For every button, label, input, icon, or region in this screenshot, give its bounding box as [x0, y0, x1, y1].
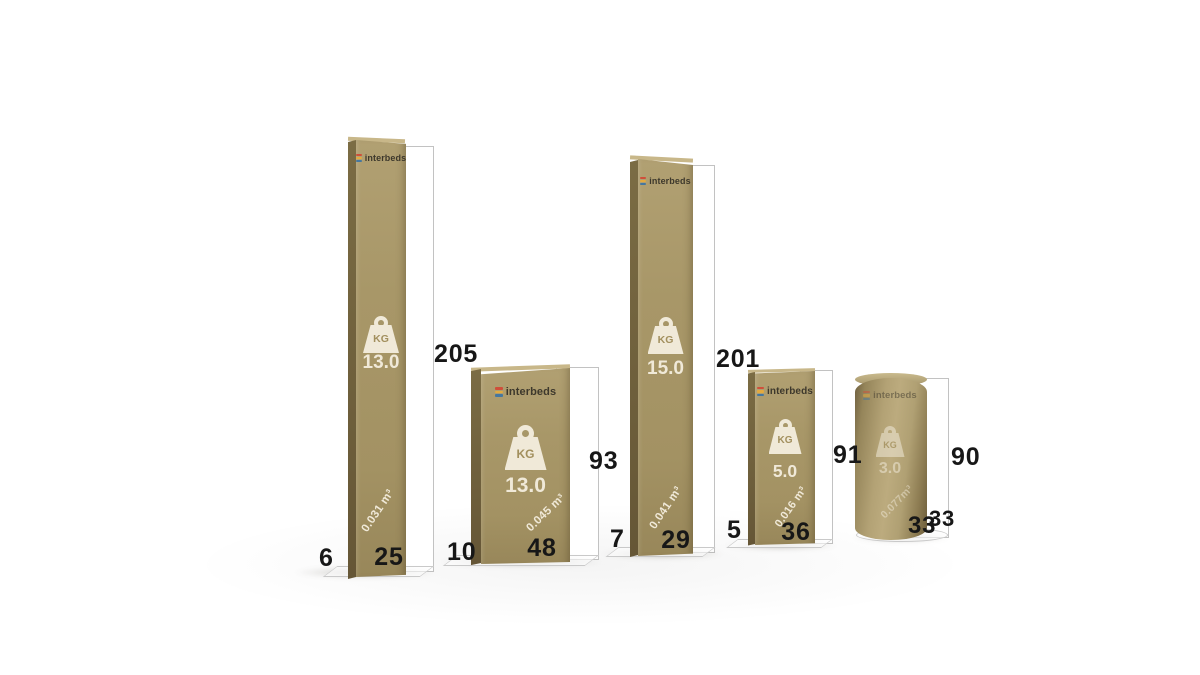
kg-unit-label: KG: [658, 334, 674, 346]
width-dimension-label: 36: [776, 520, 816, 545]
brand-logo-icon: [757, 387, 764, 396]
box-side-face: [748, 372, 755, 545]
depth-dimension-label: 7: [610, 527, 625, 552]
weight-kg-icon: KG: [858, 426, 922, 457]
weight-icon-body: KG: [769, 427, 802, 454]
weight-icon-body: KG: [505, 437, 547, 470]
height-dimension-label: 90: [951, 445, 980, 470]
box-side-face: [471, 369, 481, 565]
kg-unit-label: KG: [373, 333, 389, 345]
depth-dimension-label: 33: [929, 508, 955, 530]
brand-logo-text: interbeds: [365, 153, 406, 163]
package-5: interbeds KG 3.0 0.077m³ 90 33 33: [0, 0, 1200, 675]
height-dimension-label: 205: [434, 342, 478, 367]
weight-kg-icon: KG: [481, 425, 570, 470]
width-dimension-label: 25: [370, 545, 408, 570]
brand-logo: interbeds: [356, 153, 406, 163]
brand-logo-text: interbeds: [873, 390, 917, 401]
weight-icon-body: KG: [648, 326, 684, 354]
brand-logo-icon: [640, 177, 646, 185]
height-dimension-label: 201: [716, 347, 760, 372]
brand-logo-text: interbeds: [649, 176, 690, 186]
weight-icon-body: KG: [363, 325, 399, 353]
weight-value: 3.0: [858, 460, 922, 478]
brand-logo-text: interbeds: [767, 386, 813, 397]
depth-dimension-label: 10: [447, 540, 476, 565]
weight-kg-icon: KG: [755, 419, 815, 454]
brand-logo-text: interbeds: [506, 386, 556, 398]
kg-unit-label: KG: [883, 440, 897, 450]
height-dimension-label: 91: [833, 443, 862, 468]
brand-logo: interbeds: [858, 390, 922, 401]
depth-dimension-label: 6: [319, 546, 334, 571]
width-dimension-label: 29: [656, 528, 696, 553]
brand-logo-icon: [495, 387, 503, 396]
brand-logo: interbeds: [755, 386, 815, 397]
weight-kg-icon: KG: [638, 317, 693, 354]
box-side-face: [348, 140, 356, 579]
box-side-face: [630, 160, 638, 557]
brand-logo-icon: [863, 391, 870, 400]
weight-value: 13.0: [356, 352, 406, 374]
height-dimension-label: 93: [589, 449, 618, 474]
width-dimension-label: 48: [521, 536, 563, 561]
weight-kg-icon: KG: [356, 316, 406, 353]
brand-logo: interbeds: [638, 176, 693, 186]
brand-logo-icon: [356, 154, 362, 162]
package-size-comparison: interbeds KG 13.0 0.031 m³ 205 25 6 inte…: [0, 0, 1200, 675]
weight-icon-body: KG: [876, 433, 905, 457]
depth-dimension-label: 5: [727, 518, 742, 543]
kg-unit-label: KG: [778, 435, 793, 446]
brand-logo: interbeds: [481, 386, 570, 398]
kg-unit-label: KG: [517, 447, 535, 461]
weight-value: 15.0: [638, 358, 693, 380]
